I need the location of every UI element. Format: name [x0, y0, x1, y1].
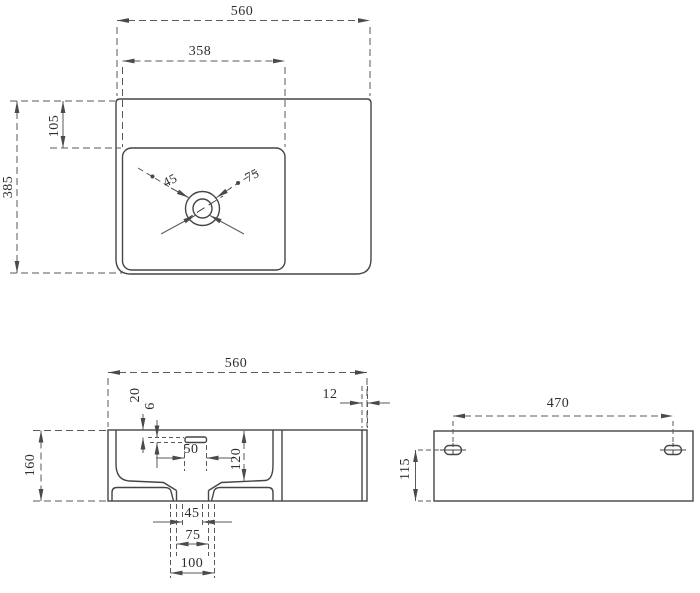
basin-technical-drawing: 560 358 385 105 45 75 560 12 160 20 6 50…	[0, 0, 700, 593]
front-view-left-foot	[112, 488, 174, 502]
dim-label-basin-depth: 120	[230, 448, 244, 471]
dim-label-rim-thickness: 12	[323, 388, 338, 402]
dim-label-top-basin-offset: 105	[48, 115, 62, 138]
dim-label-top-overall-depth: 385	[2, 176, 16, 199]
top-view-basin-outline	[123, 148, 286, 270]
top-view	[116, 99, 371, 274]
dim-label-front-overall-width: 560	[225, 357, 248, 371]
dim-label-drain-stem-width: 75	[186, 529, 201, 543]
drawing-linework	[0, 0, 700, 593]
top-view-body-outline	[116, 99, 371, 274]
back-view	[434, 431, 693, 501]
dim-label-overflow-height: 6	[144, 402, 158, 410]
dim-label-drain-base-width: 100	[181, 557, 204, 571]
dim-label-mount-hole-height: 115	[399, 458, 413, 480]
front-view-dimensions	[33, 373, 390, 579]
dim-label-overflow-width: 50	[184, 443, 199, 457]
front-view-basin-interior	[116, 430, 273, 491]
dim-label-top-overall-width: 560	[231, 5, 254, 19]
dim-label-drain-width: 45	[185, 507, 200, 521]
dim-label-overflow-offset: 20	[129, 388, 143, 403]
dim-label-overall-height: 160	[24, 454, 38, 477]
dim-label-mount-hole-spacing: 470	[547, 397, 570, 411]
front-view-right-foot	[212, 488, 274, 502]
back-view-body-outline	[434, 431, 693, 501]
back-view-dimensions	[416, 416, 674, 501]
dim-label-top-basin-width: 358	[189, 45, 212, 59]
